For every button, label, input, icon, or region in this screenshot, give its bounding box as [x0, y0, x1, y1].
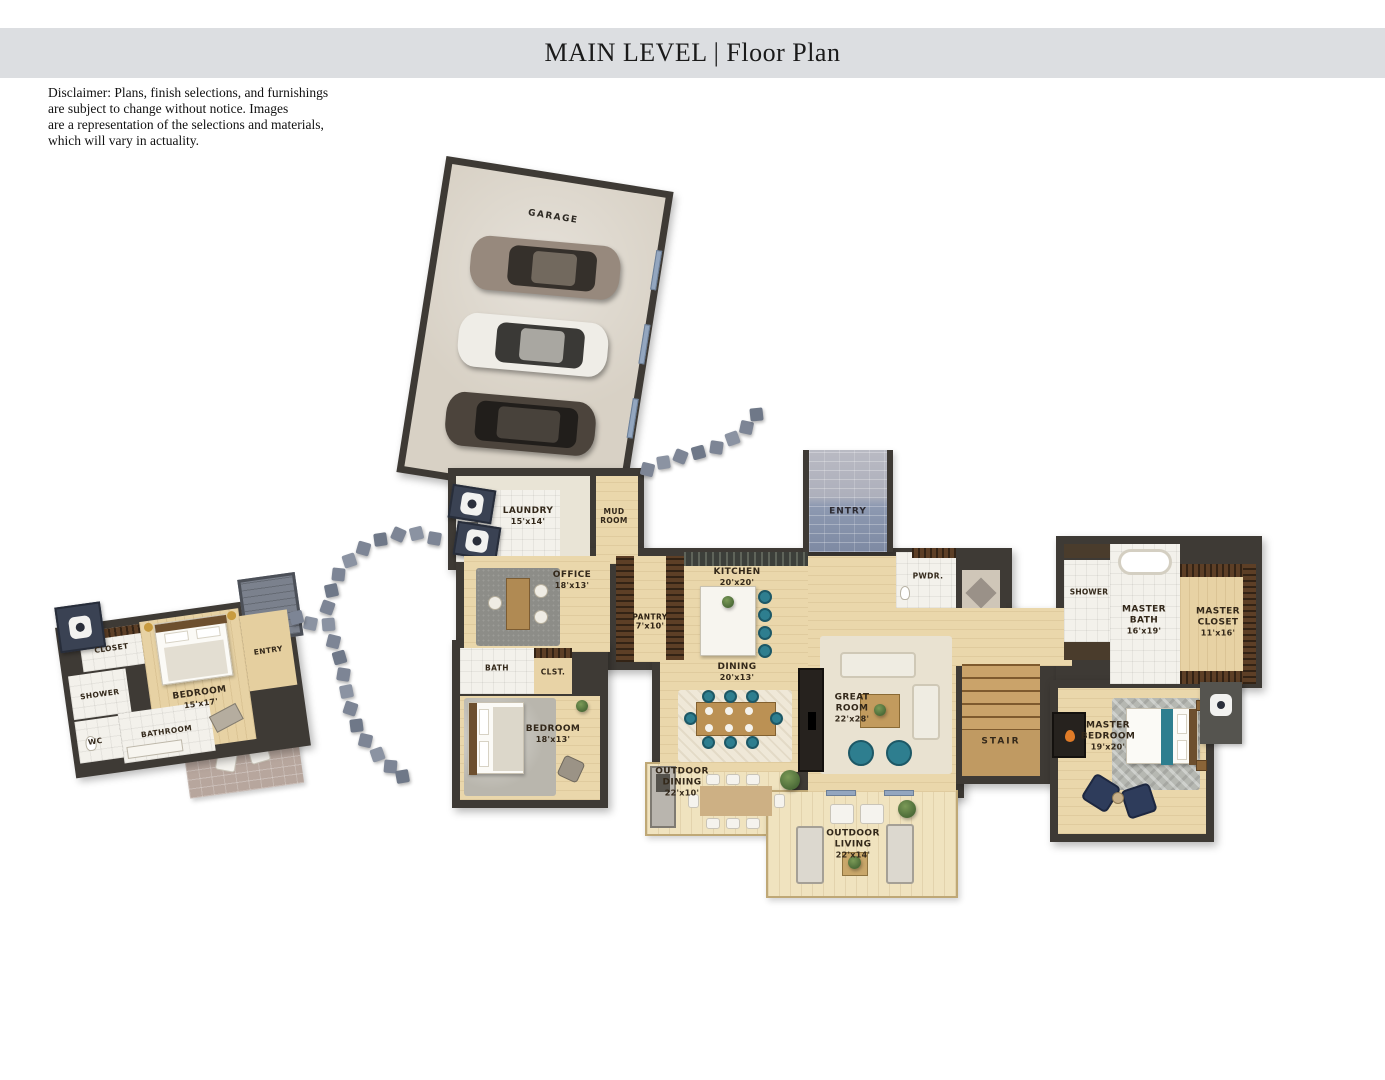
accent-chair-teal [848, 740, 874, 766]
stepping-stone [355, 540, 371, 556]
dining-chair [702, 736, 715, 749]
stepping-stone [724, 430, 741, 447]
room-clst-label: CLST. [541, 668, 566, 677]
office-chair [534, 610, 548, 624]
master-vanity [1064, 642, 1110, 660]
room-powder-label: PWDR. [913, 572, 944, 581]
place-setting [705, 724, 713, 732]
stepping-stone [336, 667, 351, 682]
stepping-stone [749, 407, 763, 421]
bar-stool [758, 590, 772, 604]
outdoor-chair [706, 818, 720, 829]
brick-texture [809, 450, 887, 552]
exterior-equipment [1200, 682, 1242, 744]
stepping-stone [640, 462, 656, 478]
room-kitchen-label: KITCHEN20'x20' [713, 567, 760, 587]
room-bedroom-label: BEDROOM18'x13' [526, 724, 580, 744]
stepping-stone [326, 634, 342, 650]
dining-chair [746, 736, 759, 749]
room-entry-label: ENTRY [829, 507, 867, 518]
room-master-closet-label: MASTER CLOSET11'x16' [1189, 606, 1247, 637]
pantry-shelves [666, 556, 684, 662]
dining-chair [746, 690, 759, 703]
pillow [1177, 740, 1187, 760]
pantry-floor [634, 556, 666, 662]
outdoor-chair [746, 774, 760, 785]
stepping-stone [331, 649, 347, 665]
great-room-sofa [840, 652, 916, 678]
room-bath-label: BATH [485, 664, 509, 673]
outdoor-chair [726, 774, 740, 785]
stepping-stone [341, 552, 357, 568]
stepping-stone [319, 599, 336, 616]
stepping-stone [369, 746, 386, 763]
room-laundry-label: LAUNDRY15'x14' [503, 506, 554, 526]
stepping-stone [342, 700, 358, 716]
outdoor-chair [726, 818, 740, 829]
headboard [1189, 709, 1197, 765]
shrub [780, 770, 800, 790]
dining-chair [684, 712, 697, 725]
stepping-stone [349, 718, 363, 732]
ac-unit [448, 484, 497, 524]
outdoor-lounge-chair [830, 804, 854, 824]
room-stair-label: STAIR [981, 737, 1020, 748]
bed [468, 702, 524, 774]
room-master-shower-label: SHOWER [1070, 588, 1108, 597]
stepping-stone [691, 445, 707, 461]
outdoor-sofa [796, 826, 824, 884]
upper-hall-floor [956, 608, 1072, 666]
laundry-counter [560, 476, 590, 562]
pillow [479, 741, 489, 767]
great-room-window [884, 790, 914, 796]
stepping-stone [739, 420, 754, 435]
entry-porch [803, 450, 893, 552]
stepping-stone [390, 526, 407, 543]
car-roof [531, 251, 578, 287]
duvet [493, 707, 523, 771]
place-setting [725, 707, 733, 715]
garage-wing: GARAGE [396, 156, 673, 508]
bar-stool [758, 644, 772, 658]
shower-bench [1064, 544, 1110, 558]
stepping-stone [358, 733, 374, 749]
place-setting [725, 724, 733, 732]
bathtub [1118, 549, 1172, 575]
fan-icon [1210, 694, 1232, 716]
stepping-stone [709, 440, 724, 455]
stepping-stone [409, 526, 425, 542]
stepping-stone [427, 531, 442, 546]
side-table [1112, 792, 1124, 804]
toilet [900, 586, 910, 600]
stepping-stone [395, 769, 410, 784]
disclaimer-line: Disclaimer: Plans, finish selections, an… [48, 85, 358, 101]
accent-chair-teal [886, 740, 912, 766]
duvet [164, 640, 228, 682]
master-shower-floor [1064, 560, 1110, 642]
pillow [196, 626, 221, 639]
stepping-stone [339, 684, 354, 699]
room-dining-label: DINING20'x13' [717, 662, 756, 682]
room-outdoor-living-label: OUTDOOR LIVING22'x14' [824, 828, 882, 859]
outdoor-sofa [886, 824, 914, 884]
place-setting [745, 724, 753, 732]
stepping-stone [303, 616, 318, 631]
fan-icon [464, 528, 489, 553]
stepping-stone [373, 532, 388, 547]
closet-shelf [534, 648, 572, 658]
car-roof [496, 406, 561, 443]
pillow [164, 630, 189, 643]
room-mud-label: MUD ROOM [594, 507, 634, 525]
title-bar: MAIN LEVEL | Floor Plan [0, 28, 1385, 78]
disclaimer-line: which will vary in actuality. [48, 133, 358, 149]
office-chair [534, 584, 548, 598]
disclaimer-line: are subject to change without notice. Im… [48, 101, 358, 117]
pantry-shelves [616, 556, 634, 662]
room-office-label: OFFICE18'x13' [553, 570, 591, 590]
car-roof [519, 328, 566, 364]
stepping-stone [672, 448, 689, 465]
place-setting [705, 707, 713, 715]
bed-runner [1161, 709, 1173, 765]
stepping-stone [324, 583, 339, 598]
shrub [898, 800, 916, 818]
room-great-label: GREAT ROOM22'x28' [817, 692, 887, 723]
nightstand [1196, 760, 1207, 771]
room-outdoor-dining-label: OUTDOOR DINING22'x10' [654, 766, 710, 797]
bar-stool [758, 626, 772, 640]
great-room-window [826, 790, 856, 796]
outdoor-chair [774, 794, 785, 808]
outdoor-table [700, 786, 772, 816]
kitchen-counter [684, 552, 808, 566]
room-master-bedroom-label: MASTER BEDROOM19'x20' [1069, 720, 1147, 751]
dining-table [696, 702, 776, 736]
page-title: MAIN LEVEL | Floor Plan [545, 38, 841, 68]
guest-casita: CLOSET SHOWER WC BATHROOM BEDROOM15'x17'… [44, 571, 332, 823]
disclaimer-line: are a representation of the selections a… [48, 117, 358, 133]
dining-chair [770, 712, 783, 725]
plant [576, 700, 588, 712]
room-pantry-label: PANTRY7'x10' [632, 613, 667, 632]
dining-chair [724, 736, 737, 749]
fan-icon [68, 615, 93, 640]
guest-bed [154, 614, 234, 685]
fan-icon [459, 491, 484, 516]
stepping-stone [331, 567, 345, 581]
fan-hub [1217, 701, 1225, 709]
great-room-chaise [912, 684, 940, 740]
headboard [469, 703, 477, 775]
island-plant [722, 596, 734, 608]
diamond-tile [965, 577, 996, 608]
pillow [1177, 714, 1187, 734]
outdoor-chair [746, 818, 760, 829]
firebox [808, 712, 816, 730]
disclaimer-text: Disclaimer: Plans, finish selections, an… [48, 85, 358, 149]
pillow [479, 709, 489, 735]
dining-chair [724, 690, 737, 703]
place-setting [745, 707, 753, 715]
office-chair [488, 596, 502, 610]
office-desk [506, 578, 530, 630]
coat-shelf [912, 548, 956, 558]
dining-chair [702, 690, 715, 703]
bar-stool [758, 608, 772, 622]
floor-plan-page: MAIN LEVEL | Floor Plan Disclaimer: Plan… [0, 0, 1385, 1080]
stepping-stone [321, 617, 335, 631]
room-master-bath-label: MASTER BATH16'x19' [1114, 604, 1174, 635]
outdoor-lounge-chair [860, 804, 884, 824]
stepping-stone [656, 455, 671, 470]
